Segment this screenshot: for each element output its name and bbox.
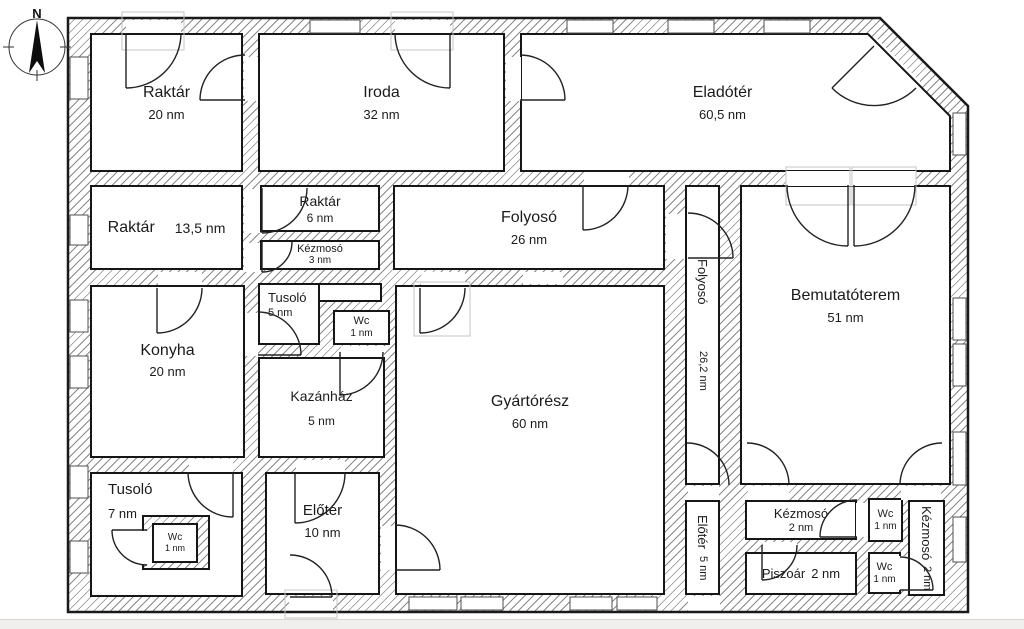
room-name: Wc — [878, 509, 894, 520]
room-name: Gyártórész — [491, 394, 569, 410]
room-area: 60,5 nm — [699, 108, 746, 121]
room-area: 1 nm — [165, 544, 185, 553]
room-name: Raktár — [143, 85, 190, 101]
room-kezmoso-2b: Kézmosó 2 nm — [908, 500, 945, 596]
room-area: 20 nm — [149, 365, 185, 378]
room-area: 2 nm — [921, 566, 932, 590]
room-name: Bemutatóterem — [791, 288, 900, 304]
room-area: 7 nm — [108, 507, 137, 520]
room-name: Előtér — [303, 503, 342, 518]
room-eloter-10: Előtér 10 nm — [265, 472, 380, 595]
room-wc-1b: Wc 1 nm — [152, 523, 198, 563]
page-strip — [0, 619, 1024, 629]
north-arrow-icon — [29, 20, 45, 73]
room-area: 60 nm — [512, 417, 548, 430]
room-name: Folyosó — [501, 210, 557, 226]
room-area: 32 nm — [363, 108, 399, 121]
room-area: 13,5 nm — [175, 221, 226, 235]
room-eladoter: Eladótér 60,5 nm — [520, 33, 951, 172]
room-name: Konyha — [140, 343, 194, 359]
room-raktar-20: Raktár 20 nm — [90, 33, 243, 172]
room-name: Iroda — [363, 85, 399, 101]
room-area: 1 nm — [350, 329, 372, 339]
room-kazanhaz: Kazánház 5 nm — [258, 357, 385, 458]
room-name: Kézmosó — [774, 507, 828, 520]
room-area: 26 nm — [511, 233, 547, 246]
compass-icon: N — [3, 6, 71, 81]
room-area: 5 nm — [308, 415, 335, 427]
room-kezmoso-3: Kézmosó 3 nm — [260, 240, 380, 270]
room-name: Wc — [168, 533, 182, 543]
room-name: Raktár — [108, 220, 155, 236]
room-wc-1d: Wc 1 nm — [868, 552, 901, 594]
room-area: 1 nm — [873, 575, 895, 585]
room-name: Wc — [354, 316, 370, 327]
room-name: Tusoló — [268, 291, 307, 304]
room-name: Kézmosó — [297, 244, 343, 255]
compass-north-label: N — [32, 6, 41, 21]
room-name: Kazánház — [290, 389, 352, 403]
room-area: 6 nm — [307, 212, 334, 224]
room-area: 1 nm — [874, 522, 896, 532]
room-area: 2 nm — [811, 567, 840, 580]
room-raktar-13-5: Raktár 13,5 nm — [90, 185, 243, 270]
room-name: Kézmosó — [920, 506, 933, 560]
room-area: 26,2 nm — [697, 351, 708, 391]
room-piszoar: Piszoár 2 nm — [745, 552, 857, 595]
room-name: Raktár — [299, 194, 340, 208]
room-name: Folyosó — [696, 259, 709, 305]
room-area: 2 nm — [789, 523, 813, 534]
room-wc-1a: Wc 1 nm — [333, 310, 390, 345]
room-name: Eladótér — [693, 85, 753, 101]
room-tusolo-5: Tusoló 5 nm — [258, 283, 320, 345]
room-bemutatoterem: Bemutatóterem 51 nm — [740, 185, 951, 485]
room-eloter-5: Előtér 5 nm — [685, 500, 720, 595]
room-tusolo-5-ext — [316, 283, 382, 302]
room-konyha: Konyha 20 nm — [90, 285, 245, 458]
room-area: 10 nm — [304, 526, 340, 539]
room-area: 20 nm — [148, 108, 184, 121]
room-kezmoso-2a: Kézmosó 2 nm — [745, 500, 857, 540]
room-area: 5 nm — [268, 308, 292, 319]
room-folyoso-26-2: Folyosó 26,2 nm — [685, 185, 720, 485]
floor-plan: Raktár 20 nm Iroda 32 nm Eladótér 60,5 n… — [0, 0, 1024, 629]
room-raktar-6: Raktár 6 nm — [260, 185, 380, 232]
room-name: Wc — [877, 562, 893, 573]
room-name: Előtér — [696, 515, 709, 549]
room-gyartoresz: Gyártórész 60 nm — [395, 285, 665, 595]
room-area: 51 nm — [827, 311, 863, 324]
room-name: Piszoár — [762, 567, 805, 580]
room-iroda: Iroda 32 nm — [258, 33, 505, 172]
room-folyoso-26: Folyosó 26 nm — [393, 185, 665, 270]
room-area: 5 nm — [697, 556, 708, 580]
room-area: 3 nm — [309, 256, 331, 266]
room-wc-1c: Wc 1 nm — [868, 498, 903, 542]
room-name: Tusoló — [108, 482, 152, 497]
